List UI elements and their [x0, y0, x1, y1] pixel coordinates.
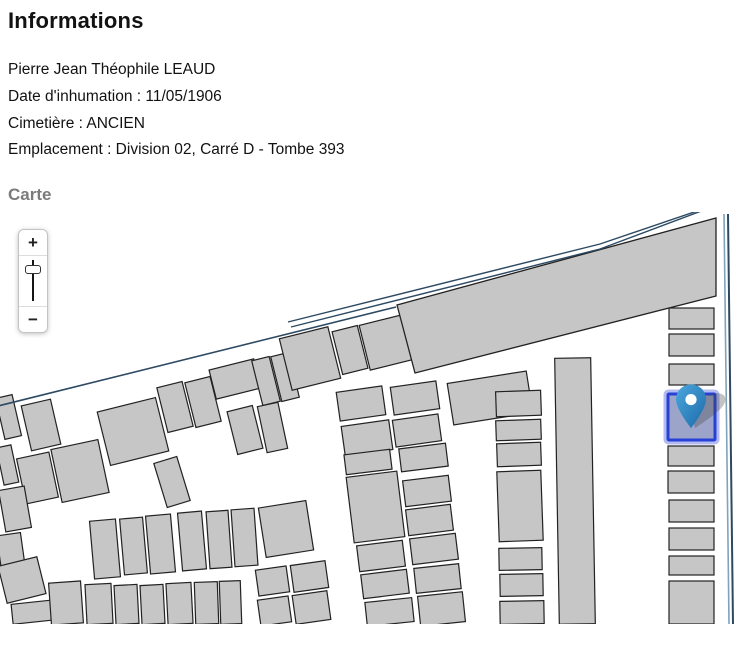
cemetery-name: Cimetière : ANCIEN: [8, 111, 735, 138]
page-title: Informations: [8, 8, 735, 34]
cemetery-map-canvas[interactable]: [0, 212, 735, 624]
tombs-layer: [0, 218, 716, 624]
tomb-polygon[interactable]: [499, 548, 542, 571]
tomb-polygon[interactable]: [336, 386, 386, 421]
zoom-out-button[interactable]: −: [19, 306, 47, 332]
building-polygon[interactable]: [397, 218, 716, 373]
tomb-polygon[interactable]: [669, 364, 714, 385]
tomb-polygon[interactable]: [392, 414, 441, 447]
tomb-polygon[interactable]: [114, 585, 139, 625]
tomb-polygon[interactable]: [500, 601, 544, 624]
zoom-in-button[interactable]: +: [19, 230, 47, 256]
tomb-polygon[interactable]: [49, 581, 84, 624]
map-section-label: Carte: [8, 185, 735, 205]
tomb-polygon[interactable]: [146, 514, 176, 574]
tomb-polygon[interactable]: [496, 390, 542, 417]
tomb-polygon[interactable]: [496, 419, 542, 441]
tomb-polygon[interactable]: [231, 508, 258, 566]
tomb-polygon[interactable]: [51, 440, 109, 503]
tomb-polygon[interactable]: [219, 581, 241, 624]
deceased-info: Pierre Jean Théophile LEAUD Date d'inhum…: [8, 57, 735, 164]
tomb-polygon[interactable]: [357, 540, 406, 571]
tomb-polygon[interactable]: [410, 533, 459, 564]
tomb-polygon[interactable]: [497, 470, 543, 541]
tomb-polygon[interactable]: [140, 585, 165, 625]
tomb-polygon[interactable]: [403, 475, 452, 506]
tomb-polygon[interactable]: [120, 517, 148, 575]
tomb-polygon[interactable]: [227, 406, 263, 455]
tomb-polygon[interactable]: [668, 471, 714, 493]
tomb-polygon[interactable]: [206, 510, 232, 568]
tomb-polygon[interactable]: [669, 334, 714, 356]
grave-location: Emplacement : Division 02, Carré D - Tom…: [8, 137, 735, 164]
tomb-polygon[interactable]: [365, 598, 414, 624]
tomb-polygon[interactable]: [361, 569, 410, 598]
tomb-polygon[interactable]: [166, 583, 193, 625]
tomb-polygon[interactable]: [669, 556, 714, 575]
tomb-polygon[interactable]: [390, 381, 439, 415]
tomb-polygon[interactable]: [0, 557, 46, 604]
cemetery-map[interactable]: + −: [0, 212, 735, 624]
tomb-polygon[interactable]: [258, 501, 313, 558]
tomb-polygon[interactable]: [669, 308, 714, 329]
tomb-polygon[interactable]: [669, 581, 714, 624]
tomb-polygon[interactable]: [418, 592, 466, 624]
page-content: Informations Pierre Jean Théophile LEAUD…: [0, 8, 735, 205]
zoom-slider[interactable]: [19, 256, 47, 306]
tomb-polygon[interactable]: [406, 505, 454, 536]
tomb-polygon[interactable]: [21, 399, 61, 451]
tomb-polygon[interactable]: [0, 445, 19, 485]
tomb-polygon[interactable]: [292, 591, 331, 624]
tomb-polygon[interactable]: [399, 443, 448, 472]
tomb-polygon[interactable]: [255, 566, 289, 596]
tomb-polygon[interactable]: [668, 446, 714, 466]
burial-date: Date d'inhumation : 11/05/1906: [8, 84, 735, 111]
tomb-polygon[interactable]: [669, 528, 714, 550]
tomb-polygon[interactable]: [178, 511, 207, 571]
tomb-polygon[interactable]: [500, 574, 543, 597]
tomb-polygon[interactable]: [290, 561, 328, 593]
marker-hole: [685, 394, 696, 405]
tomb-polygon[interactable]: [257, 596, 291, 624]
tomb-polygon[interactable]: [669, 500, 714, 522]
tomb-polygon[interactable]: [414, 564, 461, 594]
tomb-polygon[interactable]: [154, 457, 190, 508]
tomb-polygon[interactable]: [194, 582, 218, 624]
tomb-polygon[interactable]: [346, 471, 405, 543]
tomb-polygon[interactable]: [97, 398, 169, 466]
tomb-polygon[interactable]: [497, 442, 542, 467]
deceased-name: Pierre Jean Théophile LEAUD: [8, 57, 735, 84]
tomb-polygon[interactable]: [85, 584, 113, 625]
zoom-control[interactable]: + −: [18, 229, 48, 333]
zoom-slider-knob[interactable]: [25, 265, 41, 274]
tomb-polygon[interactable]: [555, 358, 596, 624]
tomb-polygon[interactable]: [90, 519, 121, 579]
